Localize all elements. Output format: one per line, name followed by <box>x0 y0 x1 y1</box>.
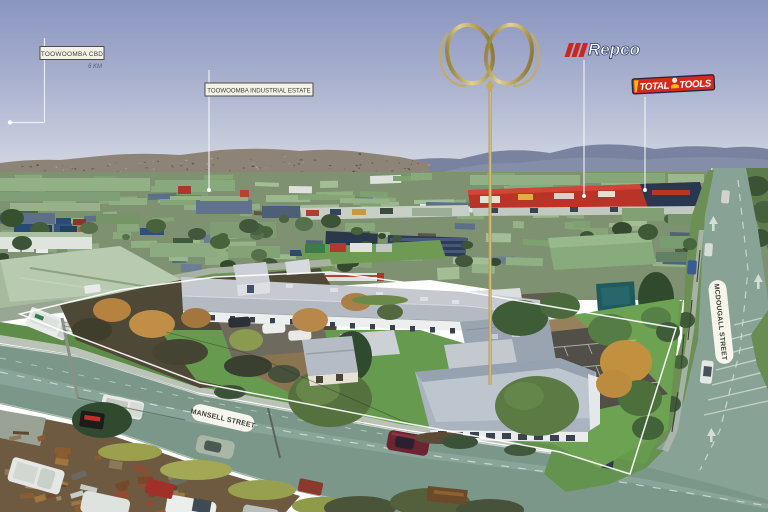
svg-text:Repco: Repco <box>588 40 640 59</box>
svg-text:TOOWOOMBA INDUSTRIAL ESTATE: TOOWOOMBA INDUSTRIAL ESTATE <box>207 88 310 95</box>
svg-text:TOOWOOMBA CBD: TOOWOOMBA CBD <box>41 51 103 58</box>
svg-text:TOTAL: TOTAL <box>639 81 670 94</box>
svg-text:TOOLS: TOOLS <box>679 78 712 91</box>
svg-text:6 KM: 6 KM <box>88 64 102 70</box>
